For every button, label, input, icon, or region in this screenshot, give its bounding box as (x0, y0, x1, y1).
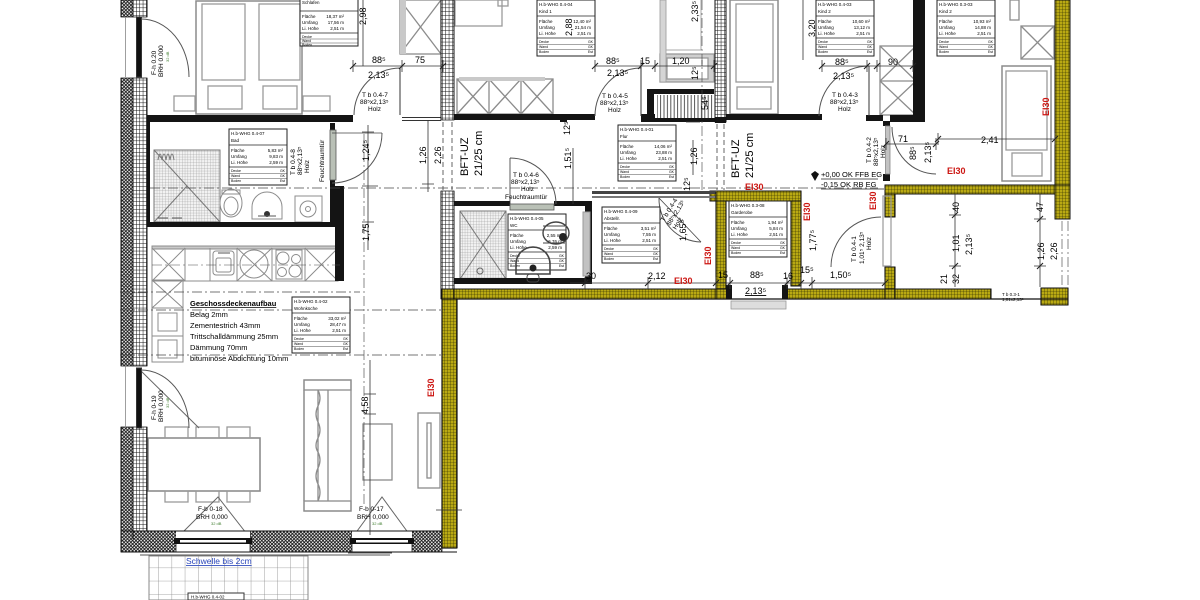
svg-text:Fläche: Fläche (302, 14, 316, 19)
svg-text:EI30: EI30 (745, 182, 764, 192)
svg-text:Wand: Wand (731, 246, 740, 250)
svg-text:Garderobe: Garderobe (731, 210, 753, 215)
svg-text:21/25 cm: 21/25 cm (473, 131, 485, 176)
svg-text:71: 71 (898, 134, 908, 144)
svg-text:2,59 m: 2,59 m (548, 245, 562, 250)
svg-text:2,13⁵: 2,13⁵ (964, 233, 974, 255)
svg-text:Est: Est (588, 50, 593, 54)
svg-text:2,88: 2,88 (564, 18, 574, 36)
svg-text:GK: GK (588, 40, 594, 44)
svg-text:T b 0.4-3: T b 0.4-3 (832, 92, 858, 99)
svg-text:Est: Est (669, 175, 674, 179)
svg-text:88⁵x2,13⁵: 88⁵x2,13⁵ (360, 99, 389, 106)
svg-text:Umfang: Umfang (939, 25, 955, 30)
svg-text:T b 0.4-7: T b 0.4-7 (362, 92, 388, 99)
svg-text:2,51 m: 2,51 m (769, 232, 783, 237)
svg-text:2,51 m: 2,51 m (977, 31, 991, 36)
svg-text:Decke: Decke (294, 337, 304, 341)
svg-text:88⁵x2,13⁵: 88⁵x2,13⁵ (600, 100, 629, 107)
svg-text:15: 15 (640, 56, 650, 66)
svg-text:BFT-UZ: BFT-UZ (459, 137, 471, 176)
svg-text:33,02 m²: 33,02 m² (328, 316, 346, 321)
svg-text:90: 90 (888, 57, 898, 67)
svg-text:Fläche: Fläche (294, 316, 308, 321)
svg-text:1,24⁵: 1,24⁵ (361, 139, 371, 161)
svg-text:18,37 m²: 18,37 m² (326, 14, 344, 19)
svg-text:GK: GK (588, 45, 594, 49)
svg-text:Fläche: Fläche (818, 19, 832, 24)
svg-text:32 dB: 32 dB (372, 521, 383, 526)
svg-text:GK: GK (280, 169, 286, 173)
svg-text:Feuchtraumtür: Feuchtraumtür (319, 139, 326, 182)
svg-text:2,41: 2,41 (981, 135, 999, 145)
svg-text:GK: GK (559, 254, 565, 258)
svg-text:Boden: Boden (294, 347, 304, 351)
svg-text:14,06 m²: 14,06 m² (654, 144, 672, 149)
svg-text:Schwelle bis 2cm: Schwelle bis 2cm (186, 556, 252, 566)
svg-text:88⁵: 88⁵ (750, 270, 764, 280)
svg-text:2,26: 2,26 (433, 146, 443, 164)
svg-text:T b 0.4-5: T b 0.4-5 (602, 93, 628, 100)
svg-text:40: 40 (951, 202, 961, 212)
svg-text:GK: GK (867, 40, 873, 44)
svg-text:BFT-UZ: BFT-UZ (730, 139, 742, 178)
svg-text:GK: GK (653, 252, 659, 256)
svg-text:Decke: Decke (604, 247, 614, 251)
svg-text:H.b-WHG 0.4-09: H.b-WHG 0.4-09 (604, 209, 638, 214)
svg-text:Boden: Boden (302, 43, 312, 47)
svg-text:1,75: 1,75 (361, 223, 371, 241)
svg-text:Kind 2: Kind 2 (939, 9, 952, 14)
svg-text:Feuchtraumtür: Feuchtraumtür (505, 194, 548, 201)
svg-text:EI30: EI30 (426, 378, 436, 397)
svg-text:Wand: Wand (510, 259, 519, 263)
svg-text:Wand: Wand (818, 45, 827, 49)
svg-text:F-h 0-19: F-h 0-19 (151, 395, 158, 420)
svg-text:12⁵: 12⁵ (682, 177, 692, 191)
svg-text:21: 21 (939, 274, 949, 284)
svg-text:Kind 2: Kind 2 (818, 9, 831, 14)
svg-text:2,51 m: 2,51 m (332, 328, 346, 333)
svg-text:Fläche: Fläche (620, 144, 634, 149)
svg-text:Decke: Decke (731, 241, 741, 245)
svg-text:BRH 0,000: BRH 0,000 (196, 514, 228, 521)
svg-text:2,12: 2,12 (648, 271, 666, 281)
svg-text:H.b-WHG 0.4-07: H.b-WHG 0.4-07 (231, 131, 265, 136)
svg-text:GK: GK (669, 165, 675, 169)
svg-text:17,56 m: 17,56 m (328, 20, 345, 25)
svg-text:12⁵: 12⁵ (690, 66, 700, 80)
svg-text:GK: GK (559, 259, 565, 263)
svg-text:Flur: Flur (620, 134, 628, 139)
svg-text:GK: GK (988, 45, 994, 49)
svg-text:21/25 cm: 21/25 cm (744, 133, 756, 178)
svg-text:2,13⁵: 2,13⁵ (607, 68, 629, 78)
svg-text:5,83 m²: 5,83 m² (268, 148, 284, 153)
svg-text:H.b-WHG 0.4-02: H.b-WHG 0.4-02 (294, 299, 328, 304)
svg-text:Holz: Holz (521, 186, 534, 193)
svg-text:5,84 m: 5,84 m (769, 226, 783, 231)
svg-text:Est: Est (559, 264, 564, 268)
svg-text:1,01x2,13⁵: 1,01x2,13⁵ (1002, 297, 1024, 302)
svg-text:88⁵: 88⁵ (908, 146, 918, 160)
svg-text:Wand: Wand (939, 45, 948, 49)
svg-text:32: 32 (951, 274, 961, 284)
svg-text:Decke: Decke (539, 40, 549, 44)
svg-text:2,51 m: 2,51 m (330, 26, 344, 31)
svg-text:H.b-WHG 0.4-02: H.b-WHG 0.4-02 (191, 595, 225, 600)
svg-text:GK: GK (280, 174, 286, 178)
svg-text:Boden: Boden (620, 175, 630, 179)
svg-text:Li. Höhe: Li. Höhe (231, 160, 248, 165)
svg-text:Li. Höhe: Li. Höhe (620, 156, 637, 161)
svg-text:10,60 m²: 10,60 m² (852, 19, 870, 24)
svg-text:H.b-WHG 0.4-01: H.b-WHG 0.4-01 (620, 127, 654, 132)
svg-text:Abstellr.: Abstellr. (604, 216, 620, 221)
svg-text:Li. Höhe: Li. Höhe (302, 26, 319, 31)
svg-text:Wand: Wand (604, 252, 613, 256)
svg-text:Li. Höhe: Li. Höhe (294, 328, 311, 333)
svg-text:Holz: Holz (880, 145, 887, 158)
svg-text:GK: GK (343, 342, 349, 346)
svg-text:T b 0.4-6: T b 0.4-6 (513, 172, 539, 179)
svg-text:2,51 m: 2,51 m (658, 156, 672, 161)
svg-text:H.b-WHG 0.4-05: H.b-WHG 0.4-05 (510, 216, 544, 221)
svg-text:88⁵x2,13⁵: 88⁵x2,13⁵ (830, 99, 859, 106)
svg-text:EI30: EI30 (802, 202, 812, 221)
svg-text:28,47 m: 28,47 m (330, 322, 347, 327)
svg-text:1,77⁵: 1,77⁵ (808, 229, 818, 251)
svg-text:Fläche: Fläche (539, 19, 553, 24)
svg-text:GK: GK (780, 241, 786, 245)
svg-text:Decke: Decke (620, 165, 630, 169)
svg-text:1,20: 1,20 (672, 56, 690, 66)
svg-text:88⁵: 88⁵ (606, 56, 620, 66)
svg-text:H.b-WHG 0.4-04: H.b-WHG 0.4-04 (539, 2, 573, 7)
svg-text:32 dB: 32 dB (165, 51, 170, 62)
svg-text:Li. Höhe: Li. Höhe (731, 232, 748, 237)
svg-text:Fläche: Fläche (604, 226, 618, 231)
svg-text:T b 0.4-2: T b 0.4-2 (866, 137, 873, 163)
svg-text:Wand: Wand (620, 170, 629, 174)
svg-text:2,98: 2,98 (358, 7, 368, 25)
svg-text:Decke: Decke (939, 40, 949, 44)
svg-text:GK: GK (669, 170, 675, 174)
svg-text:2,51 m: 2,51 m (642, 238, 656, 243)
svg-text:EI30: EI30 (947, 166, 966, 176)
svg-text:2,59 m: 2,59 m (269, 160, 283, 165)
svg-text:2,13⁵: 2,13⁵ (833, 71, 855, 81)
svg-text:Holz: Holz (304, 160, 311, 173)
svg-text:Umfang: Umfang (231, 154, 247, 159)
svg-text:2,33⁵: 2,33⁵ (690, 0, 700, 22)
svg-text:Wohnküche: Wohnküche (294, 306, 318, 311)
svg-text:1,26: 1,26 (1036, 242, 1046, 260)
svg-text:Geschossdeckenaufbau: Geschossdeckenaufbau (190, 299, 277, 308)
svg-text:14,88 m: 14,88 m (975, 25, 992, 30)
svg-text:32 dB: 32 dB (165, 397, 170, 408)
svg-text:Est: Est (780, 251, 785, 255)
svg-text:Umfang: Umfang (302, 20, 318, 25)
svg-text:32 dB: 32 dB (211, 521, 222, 526)
svg-text:Est: Est (343, 347, 348, 351)
svg-text:2,13⁵: 2,13⁵ (368, 70, 390, 80)
svg-text:GK: GK (343, 337, 349, 341)
svg-text:2,51 m: 2,51 m (577, 31, 591, 36)
svg-text:T b 0.4-1: T b 0.4-1 (851, 236, 858, 262)
svg-text:15⁵: 15⁵ (800, 265, 814, 275)
svg-text:GK: GK (780, 246, 786, 250)
svg-text:15: 15 (718, 270, 728, 280)
svg-text:Kind 1: Kind 1 (539, 9, 552, 14)
svg-text:16: 16 (783, 271, 793, 281)
svg-text:F-b 0-17: F-b 0-17 (359, 506, 384, 513)
svg-text:Wand: Wand (294, 342, 303, 346)
svg-text:Trittschalldämmung 25mm: Trittschalldämmung 25mm (190, 332, 278, 341)
svg-text:H.b-WHG 0.4-03: H.b-WHG 0.4-03 (818, 2, 852, 7)
svg-text:GK: GK (653, 247, 659, 251)
svg-text:Boden: Boden (731, 251, 741, 255)
svg-text:9,83 m: 9,83 m (269, 154, 283, 159)
svg-text:bituminöse Abdichtung 10mm: bituminöse Abdichtung 10mm (190, 354, 288, 363)
svg-text:EI30: EI30 (674, 276, 693, 286)
svg-text:2,51 m: 2,51 m (856, 31, 870, 36)
svg-text:GK: GK (988, 40, 994, 44)
svg-text:Boden: Boden (231, 179, 241, 183)
svg-text:Umfang: Umfang (510, 239, 526, 244)
svg-text:Bad: Bad (231, 138, 240, 143)
svg-text:2,13⁵: 2,13⁵ (923, 141, 933, 163)
svg-text:1,01⁵ 2,13⁵: 1,01⁵ 2,13⁵ (859, 231, 866, 264)
svg-text:88⁵x2,13⁵: 88⁵x2,13⁵ (511, 179, 540, 186)
svg-text:4,58: 4,58 (360, 396, 370, 414)
svg-text:Decke: Decke (818, 40, 828, 44)
svg-text:EI30: EI30 (868, 191, 878, 210)
svg-text:Fläche: Fläche (731, 220, 745, 225)
svg-text:7,55 m: 7,55 m (642, 232, 656, 237)
svg-text:10,93 m²: 10,93 m² (973, 19, 991, 24)
svg-text:Est: Est (867, 50, 872, 54)
svg-text:F-h 0.20: F-h 0.20 (151, 50, 158, 75)
svg-text:12,40 m²: 12,40 m² (573, 19, 591, 24)
svg-text:Est: Est (653, 257, 658, 261)
svg-text:54⁵: 54⁵ (700, 96, 710, 110)
svg-text:Li. Höhe: Li. Höhe (539, 31, 556, 36)
svg-text:F-b 0-18: F-b 0-18 (198, 506, 223, 513)
svg-text:Schlafen: Schlafen (302, 0, 320, 5)
svg-text:Holz: Holz (368, 106, 381, 113)
svg-text:T b 0.4-8: T b 0.4-8 (290, 149, 297, 175)
svg-text:2,26: 2,26 (1049, 242, 1059, 260)
svg-text:Boden: Boden (539, 50, 549, 54)
svg-text:Est: Est (988, 50, 993, 54)
svg-text:H.b-WHG 0.3-03: H.b-WHG 0.3-03 (939, 2, 973, 7)
svg-text:Li. Höhe: Li. Höhe (604, 238, 621, 243)
svg-text:88⁵: 88⁵ (835, 57, 849, 67)
svg-text:75: 75 (415, 55, 425, 65)
svg-text:23,88 m: 23,88 m (656, 150, 673, 155)
svg-text:GK: GK (867, 45, 873, 49)
svg-text:Boden: Boden (939, 50, 949, 54)
svg-text:Boden: Boden (604, 257, 614, 261)
svg-text:Dämmung 70mm: Dämmung 70mm (190, 343, 248, 352)
svg-text:H.b-WHG 0.3-08: H.b-WHG 0.3-08 (731, 203, 765, 208)
svg-text:1,26: 1,26 (689, 147, 699, 165)
svg-text:Li. Höhe: Li. Höhe (818, 31, 835, 36)
svg-text:WC: WC (510, 223, 518, 228)
svg-text:3,20: 3,20 (807, 19, 817, 37)
svg-text:1,51⁵: 1,51⁵ (563, 147, 573, 169)
svg-text:Umfang: Umfang (539, 25, 555, 30)
svg-text:13,12 m: 13,12 m (854, 25, 871, 30)
svg-text:Boden: Boden (818, 50, 828, 54)
svg-text:Umfang: Umfang (294, 322, 310, 327)
svg-text:Holz: Holz (838, 106, 851, 113)
svg-text:Umfang: Umfang (604, 232, 620, 237)
svg-text:12⁵: 12⁵ (562, 121, 572, 135)
svg-text:1,01: 1,01 (951, 234, 961, 252)
svg-text:BRH 0,000: BRH 0,000 (158, 390, 165, 422)
svg-text:1,50⁵: 1,50⁵ (830, 270, 852, 280)
svg-text:Umfang: Umfang (731, 226, 747, 231)
svg-text:Umfang: Umfang (620, 150, 636, 155)
svg-text:Wand: Wand (231, 174, 240, 178)
svg-text:2,13⁵: 2,13⁵ (745, 286, 767, 296)
svg-text:30: 30 (586, 271, 596, 281)
svg-text:1,26: 1,26 (418, 146, 428, 164)
svg-text:Holz: Holz (608, 107, 621, 114)
svg-text:21,54 m: 21,54 m (575, 25, 592, 30)
svg-text:88⁵x2,13⁵: 88⁵x2,13⁵ (873, 137, 880, 166)
svg-text:+0,00 OK FFB EG: +0,00 OK FFB EG (821, 170, 882, 179)
svg-text:Fläche: Fläche (939, 19, 953, 24)
svg-text:88⁵x2,13⁵: 88⁵x2,13⁵ (297, 146, 304, 175)
svg-text:Est: Est (280, 179, 285, 183)
svg-text:Boden: Boden (510, 264, 520, 268)
svg-text:BRH 0.000: BRH 0.000 (158, 45, 165, 77)
svg-text:-0,15 OK RB EG: -0,15 OK RB EG (821, 180, 877, 189)
svg-text:Decke: Decke (231, 169, 241, 173)
svg-text:Fläche: Fläche (231, 148, 245, 153)
svg-text:Umfang: Umfang (818, 25, 834, 30)
svg-text:88⁵: 88⁵ (372, 55, 386, 65)
svg-text:Wand: Wand (539, 45, 548, 49)
svg-text:Fläche: Fläche (510, 233, 524, 238)
svg-text:Zementestrich 43mm: Zementestrich 43mm (190, 321, 260, 330)
svg-text:Li. Höhe: Li. Höhe (939, 31, 956, 36)
svg-text:Holz: Holz (866, 237, 873, 250)
svg-text:47: 47 (1035, 202, 1045, 212)
svg-text:3,51 m²: 3,51 m² (641, 226, 657, 231)
svg-text:Belag 2mm: Belag 2mm (190, 310, 228, 319)
svg-text:BRH 0,000: BRH 0,000 (357, 514, 389, 521)
svg-text:EI30: EI30 (703, 246, 713, 265)
svg-text:EI30: EI30 (1041, 97, 1051, 116)
svg-text:1,94 m²: 1,94 m² (768, 220, 784, 225)
